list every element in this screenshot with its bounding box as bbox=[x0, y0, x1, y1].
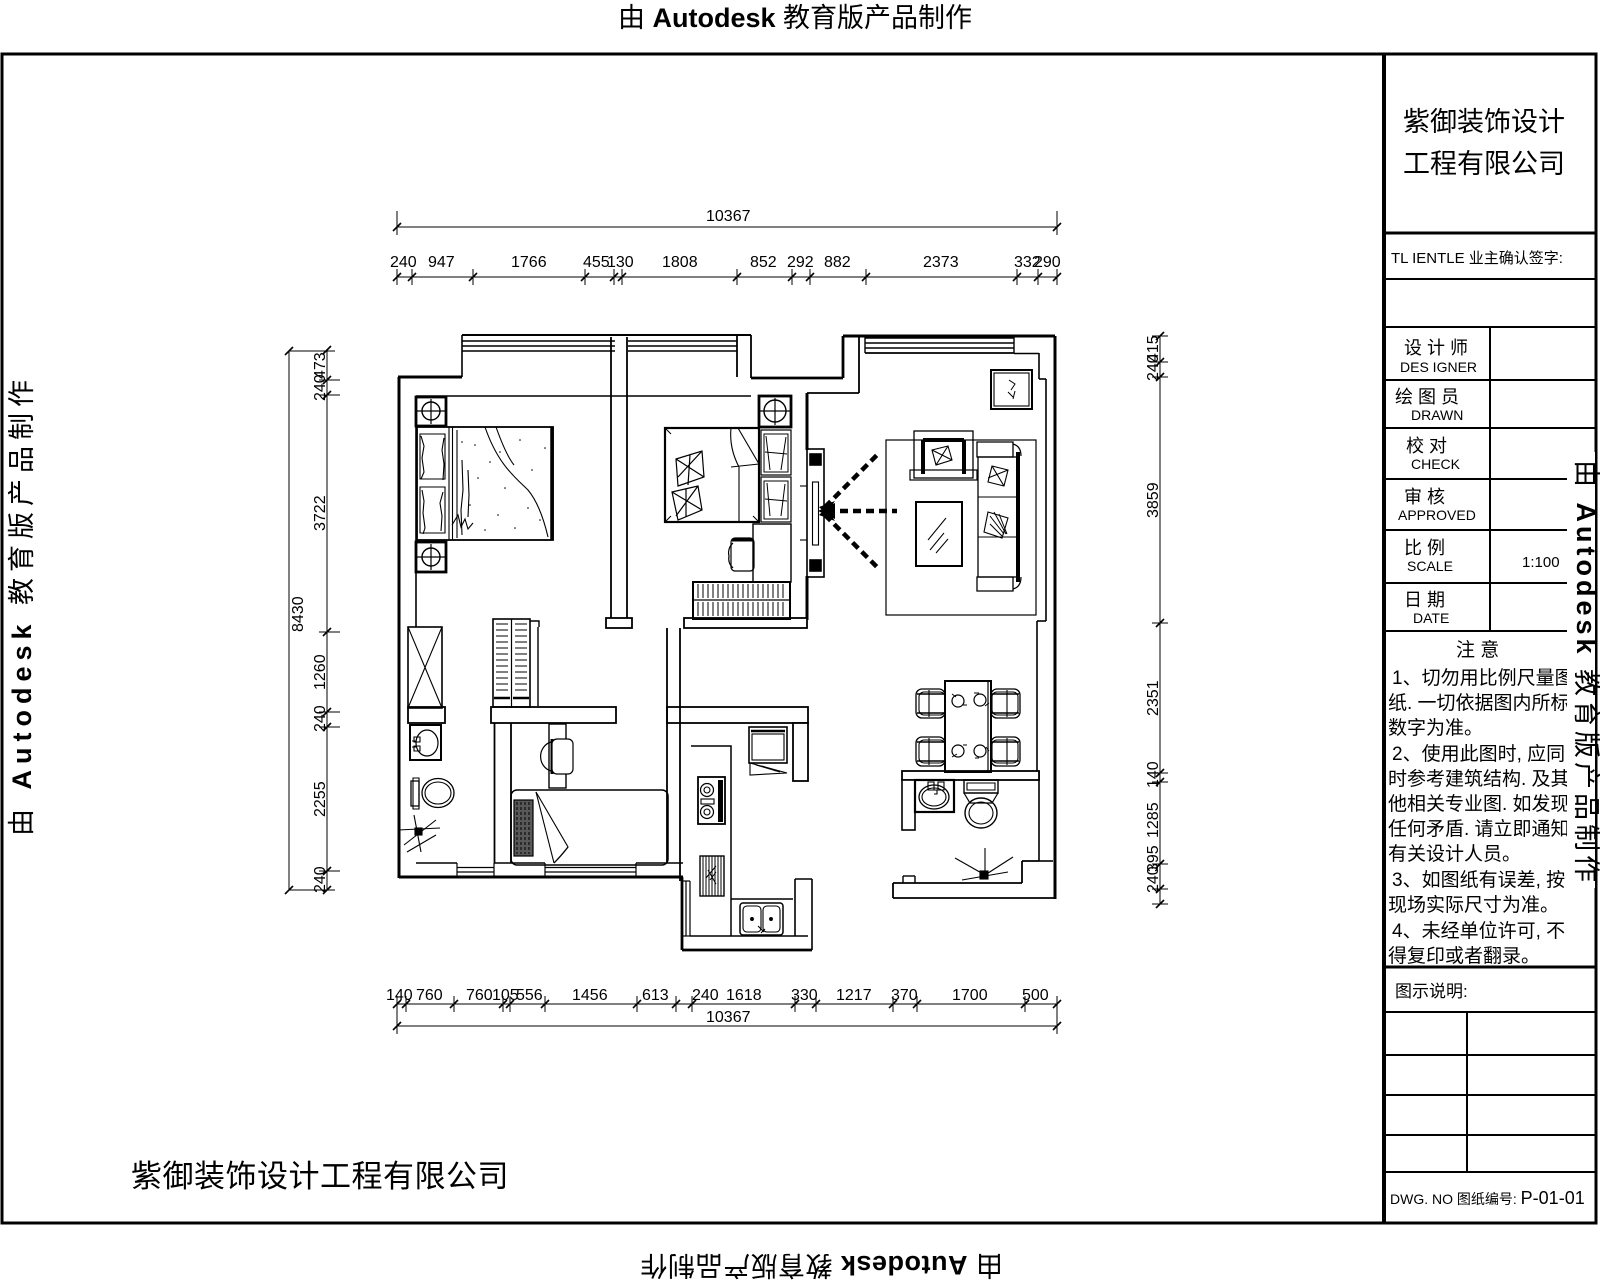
svg-text:760: 760 bbox=[466, 987, 493, 1004]
svg-text:3859: 3859 bbox=[1145, 482, 1162, 518]
svg-text:DWG. NO 图纸编号: P-01-01: DWG. NO 图纸编号: P-01-01 bbox=[1390, 1188, 1585, 1208]
svg-text:8430: 8430 bbox=[290, 596, 307, 632]
svg-text:有关设计人员。: 有关设计人员。 bbox=[1388, 843, 1521, 865]
svg-text:1260: 1260 bbox=[312, 654, 329, 690]
svg-text:240: 240 bbox=[390, 254, 417, 271]
svg-text:2351: 2351 bbox=[1145, 680, 1162, 716]
svg-text:947: 947 bbox=[428, 254, 455, 271]
svg-text:DATE: DATE bbox=[1413, 610, 1449, 626]
svg-text:DRAWN: DRAWN bbox=[1411, 407, 1463, 423]
svg-text:绘 图 员: 绘 图 员 bbox=[1395, 387, 1459, 407]
svg-text:SCALE: SCALE bbox=[1407, 558, 1453, 574]
svg-text:2373: 2373 bbox=[923, 254, 959, 271]
svg-text:DES IGNER: DES IGNER bbox=[1400, 359, 1477, 375]
svg-text:3722: 3722 bbox=[312, 495, 329, 531]
svg-text:240: 240 bbox=[312, 374, 329, 401]
svg-text:10367: 10367 bbox=[706, 1009, 751, 1026]
svg-text:注 意: 注 意 bbox=[1456, 639, 1499, 661]
svg-text:他相关专业图. 如发现: 他相关专业图. 如发现 bbox=[1388, 793, 1570, 815]
svg-text:由 Autodesk 教育版产品制作: 由 Autodesk 教育版产品制作 bbox=[1571, 460, 1600, 886]
svg-text:1、切勿用比例尺量图: 1、切勿用比例尺量图 bbox=[1392, 667, 1574, 689]
svg-text:290: 290 bbox=[1034, 254, 1061, 271]
svg-text:1:100: 1:100 bbox=[1522, 554, 1560, 571]
svg-text:852: 852 bbox=[750, 254, 777, 271]
svg-text:CHECK: CHECK bbox=[1411, 456, 1461, 472]
svg-text:4、未经单位许可, 不: 4、未经单位许可, 不 bbox=[1392, 920, 1565, 942]
svg-text:1700: 1700 bbox=[952, 987, 988, 1004]
svg-text:2、使用此图时, 应同: 2、使用此图时, 应同 bbox=[1392, 743, 1565, 765]
svg-text:图示说明:: 图示说明: bbox=[1395, 982, 1468, 1001]
svg-text:紫御装饰设计: 紫御装饰设计 bbox=[1403, 107, 1565, 137]
svg-text:TL IENTLE 业主确认签字:: TL IENTLE 业主确认签字: bbox=[1391, 250, 1563, 267]
svg-text:105: 105 bbox=[492, 987, 519, 1004]
svg-text:556: 556 bbox=[516, 987, 543, 1004]
svg-text:日 期: 日 期 bbox=[1404, 590, 1445, 610]
svg-text:紫御装饰设计工程有限公司: 紫御装饰设计工程有限公司 bbox=[131, 1159, 509, 1194]
svg-text:现场实际尺寸为准。: 现场实际尺寸为准。 bbox=[1388, 894, 1559, 916]
svg-text:240: 240 bbox=[692, 987, 719, 1004]
svg-text:工程有限公司: 工程有限公司 bbox=[1403, 149, 1565, 179]
svg-text:得复印或者翻录。: 得复印或者翻录。 bbox=[1388, 945, 1540, 967]
svg-text:1285: 1285 bbox=[1145, 802, 1162, 838]
svg-text:455: 455 bbox=[583, 254, 610, 271]
svg-text:1618: 1618 bbox=[726, 987, 762, 1004]
svg-text:由 Autodesk 教育版产品制作: 由 Autodesk 教育版产品制作 bbox=[618, 3, 972, 33]
svg-text:760: 760 bbox=[416, 987, 443, 1004]
svg-text:审 核: 审 核 bbox=[1404, 487, 1445, 507]
svg-text:240: 240 bbox=[312, 705, 329, 732]
svg-text:370: 370 bbox=[891, 987, 918, 1004]
svg-text:10367: 10367 bbox=[706, 208, 751, 225]
svg-text:1456: 1456 bbox=[572, 987, 608, 1004]
svg-text:比 例: 比 例 bbox=[1404, 538, 1445, 558]
svg-text:613: 613 bbox=[642, 987, 669, 1004]
svg-text:330: 330 bbox=[791, 987, 818, 1004]
svg-text:纸. 一切依据图内所标: 纸. 一切依据图内所标 bbox=[1388, 692, 1570, 714]
svg-text:时参考建筑结构. 及其: 时参考建筑结构. 及其 bbox=[1388, 768, 1570, 790]
svg-text:882: 882 bbox=[824, 254, 851, 271]
svg-text:500: 500 bbox=[1022, 987, 1049, 1004]
svg-text:数字为准。: 数字为准。 bbox=[1388, 717, 1483, 739]
svg-text:由 Autodesk 教育版产品制作: 由 Autodesk 教育版产品制作 bbox=[7, 374, 37, 836]
svg-text:3、如图纸有误差, 按: 3、如图纸有误差, 按 bbox=[1392, 869, 1565, 891]
svg-text:240: 240 bbox=[1145, 866, 1162, 893]
svg-text:130: 130 bbox=[607, 254, 634, 271]
svg-text:140: 140 bbox=[386, 987, 413, 1004]
svg-text:任何矛盾. 请立即通知: 任何矛盾. 请立即通知 bbox=[1388, 818, 1570, 840]
svg-text:校 对: 校 对 bbox=[1406, 436, 1447, 456]
svg-text:240: 240 bbox=[312, 866, 329, 893]
svg-text:APPROVED: APPROVED bbox=[1398, 507, 1476, 523]
svg-text:1766: 1766 bbox=[511, 254, 547, 271]
svg-text:由 Autodesk 教育版产品制作: 由 Autodesk 教育版产品制作 bbox=[640, 1250, 1003, 1280]
svg-text:2255: 2255 bbox=[312, 781, 329, 817]
svg-text:292: 292 bbox=[787, 254, 814, 271]
svg-text:1217: 1217 bbox=[836, 987, 872, 1004]
svg-text:240: 240 bbox=[1145, 354, 1162, 381]
svg-text:设 计 师: 设 计 师 bbox=[1404, 338, 1468, 358]
svg-text:1808: 1808 bbox=[662, 254, 698, 271]
svg-text:140: 140 bbox=[1145, 761, 1162, 788]
